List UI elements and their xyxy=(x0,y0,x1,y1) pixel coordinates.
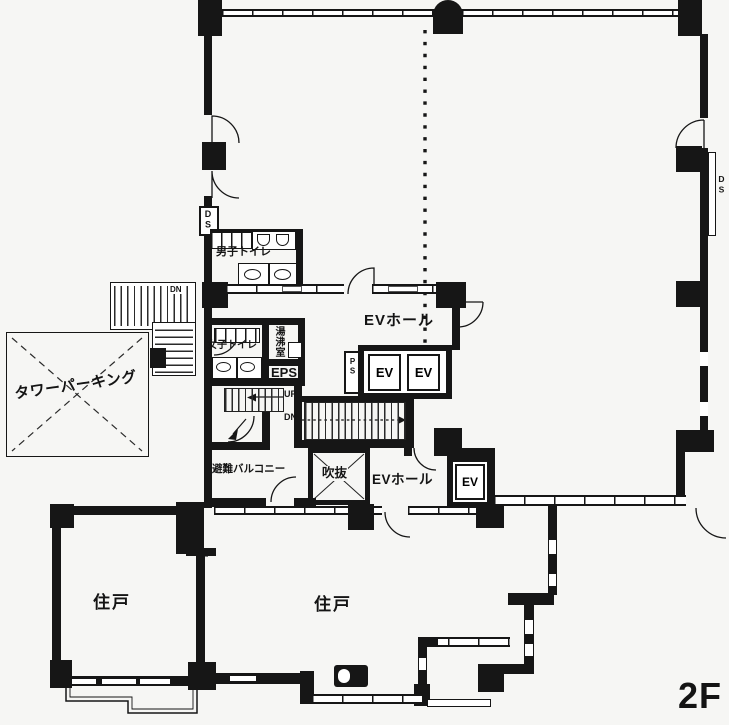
elevator-cab-2: EV xyxy=(407,354,440,391)
wall-left-unit xyxy=(52,513,61,683)
evacuation-balcony-label: 避難バルコニー xyxy=(212,464,285,475)
floor-label: 2F xyxy=(678,678,722,714)
window-slit xyxy=(419,658,426,670)
duct-space-left-label: DS xyxy=(203,209,212,230)
wall-unit-bottom xyxy=(214,673,306,684)
stair-down-label: DN xyxy=(284,413,297,422)
wall-cap xyxy=(418,637,438,647)
column xyxy=(476,504,504,528)
column xyxy=(678,0,702,36)
wall-right xyxy=(700,34,708,118)
toilet-bowl xyxy=(274,269,291,280)
dwelling-unit-left-label: 住戸 xyxy=(93,594,131,611)
window-slit xyxy=(700,402,708,416)
toilet-bowl xyxy=(216,362,231,372)
mens-toilet-label: 男子トイレ xyxy=(216,247,271,258)
column-entry xyxy=(176,502,204,554)
wall-step xyxy=(508,593,554,605)
elevator-cab-3: EV xyxy=(455,464,485,500)
dwelling-unit-right-label: 住戸 xyxy=(314,596,352,613)
window-slit xyxy=(549,540,556,554)
floor-plan-2f: DS DS 男子トイレ EVホール PS EV EV 女子トイレ xyxy=(0,0,729,725)
balcony-outline xyxy=(66,688,197,713)
window-slit xyxy=(230,676,256,681)
column-rounded-entrance xyxy=(433,0,463,34)
door-type-tag xyxy=(388,286,418,292)
wall-corner xyxy=(150,348,166,368)
wall-stair-left xyxy=(204,386,212,450)
stall-divider xyxy=(236,357,238,379)
atrium-void-label: 吹抜 xyxy=(321,466,348,481)
womens-toilet-label: 女子トイレ xyxy=(207,341,257,351)
external-stair-down-label: DN xyxy=(169,286,183,294)
elevator-2-label: EV xyxy=(415,365,432,380)
window-slit xyxy=(525,620,533,634)
column xyxy=(676,281,702,307)
stair-flight-main xyxy=(304,402,406,440)
elevator-cab-1: EV xyxy=(368,354,401,391)
wall-residence-top xyxy=(408,506,486,515)
toilet-bowl xyxy=(240,362,255,372)
wall-left xyxy=(204,16,212,115)
wall xyxy=(204,318,305,325)
balcony-parapet xyxy=(427,699,491,707)
column-step xyxy=(676,430,714,452)
column xyxy=(348,504,374,530)
wall xyxy=(204,378,305,386)
wall xyxy=(262,325,269,382)
fixture xyxy=(288,342,302,358)
column xyxy=(436,282,466,308)
stair-up-label: UP xyxy=(284,390,297,399)
window-slit xyxy=(549,574,556,586)
elevator-1-label: EV xyxy=(376,365,393,380)
window-slit xyxy=(102,679,136,684)
wall-stair-bottom xyxy=(302,440,412,448)
stair-flight-upper xyxy=(224,388,284,412)
window-slit xyxy=(700,352,708,366)
wall xyxy=(204,442,270,450)
upper-ev-hall-label: EVホール xyxy=(364,313,434,328)
wall-right-unit xyxy=(524,605,534,671)
wall-office-bottom xyxy=(494,495,686,506)
hot-water-room-label: 湯沸室 xyxy=(273,326,283,358)
wall xyxy=(406,396,414,448)
window-slit xyxy=(140,679,170,684)
wall xyxy=(404,448,412,456)
column xyxy=(202,282,228,308)
pipe-shaft-label: PS xyxy=(348,357,356,376)
column xyxy=(478,664,504,692)
toilet-bowl xyxy=(244,269,261,280)
door-type-tag xyxy=(282,286,302,292)
elevator-3-label: EV xyxy=(462,475,478,489)
duct-space-right-label: DS xyxy=(717,174,726,195)
window-slit xyxy=(525,644,533,656)
wall-right-lower xyxy=(676,452,685,498)
wall-ev-hall-right xyxy=(452,296,460,350)
column xyxy=(188,662,216,690)
bathtub-inner xyxy=(338,669,350,683)
column xyxy=(50,660,72,688)
lower-ev-hall-label: EVホール xyxy=(372,473,433,487)
column xyxy=(676,146,702,172)
wall-unit-bottom xyxy=(312,694,422,704)
column xyxy=(434,428,462,450)
column xyxy=(202,142,226,170)
duct-space-right-shaft xyxy=(708,152,716,236)
